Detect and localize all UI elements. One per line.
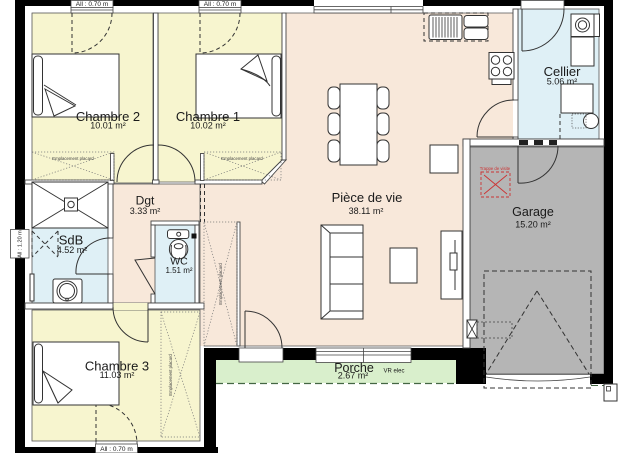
svg-text:10.02 m²: 10.02 m² [190, 121, 226, 131]
svg-text:3.33 m²: 3.33 m² [130, 206, 161, 216]
svg-text:10.01 m²: 10.01 m² [90, 121, 126, 131]
svg-text:4.52 m²: 4.52 m² [57, 245, 88, 255]
svg-text:All : 0.70 m: All : 0.70 m [76, 1, 109, 8]
svg-text:38.11 m²: 38.11 m² [349, 206, 384, 216]
svg-text:Pièce de vie: Pièce de vie [332, 190, 403, 205]
svg-text:Garage: Garage [512, 205, 554, 219]
svg-text:Emplacement placard: Emplacement placard [221, 156, 263, 161]
svg-text:11.03 m²: 11.03 m² [100, 370, 135, 380]
svg-text:Emplacement placard: Emplacement placard [218, 263, 223, 305]
svg-text:2.67 m²: 2.67 m² [338, 371, 369, 381]
svg-text:5.06 m²: 5.06 m² [547, 77, 578, 87]
svg-text:Emplacement placard: Emplacement placard [52, 156, 94, 161]
svg-text:All : 0.70 m: All : 0.70 m [100, 446, 133, 453]
svg-text:All : 1.20 m: All : 1.20 m [18, 230, 24, 258]
svg-text:1.51 m²: 1.51 m² [165, 266, 192, 275]
svg-text:VR elec: VR elec [383, 369, 404, 375]
svg-text:Emplacement placard: Emplacement placard [168, 354, 173, 396]
svg-text:All : 0.70 m: All : 0.70 m [204, 1, 237, 8]
svg-text:Trappe de visite: Trappe de visite [480, 166, 511, 171]
svg-text:15.20 m²: 15.20 m² [515, 220, 551, 230]
